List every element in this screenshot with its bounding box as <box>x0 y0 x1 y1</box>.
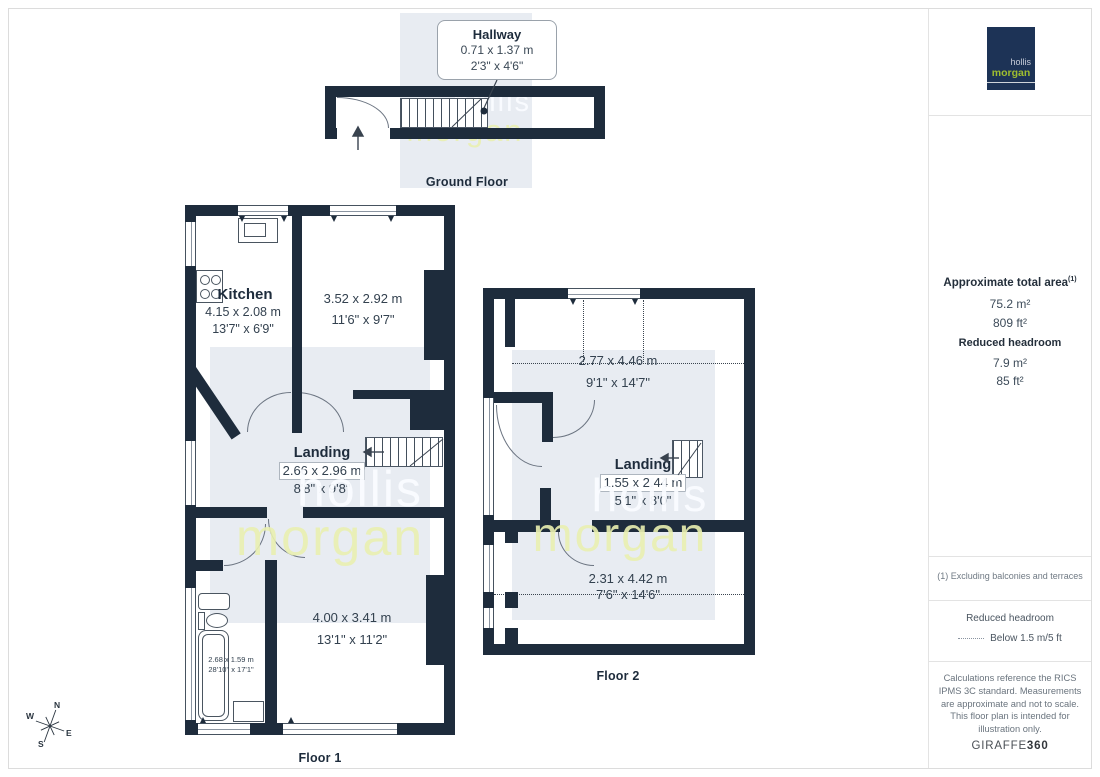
wall <box>444 205 455 735</box>
top-room-dims: 2.77 x 4.46 m 9'1" x 14'7" <box>558 350 678 394</box>
logo-morgan-text: morgan <box>987 67 1035 79</box>
bottom-room-imperial: 7'6" x 14'6" <box>568 587 688 603</box>
legend-dotted-line <box>958 638 984 639</box>
reduced-headroom-m2: 7.9 m² <box>932 356 1088 370</box>
wall <box>353 390 444 399</box>
total-area-title: Approximate total area(1) <box>932 276 1088 289</box>
hallway-callout-metric: 0.71 x 1.37 m <box>438 42 556 58</box>
hallway-callout-imperial: 2'3" x 4'6" <box>438 58 556 74</box>
bedroom-metric: 4.00 x 3.41 m <box>292 607 412 629</box>
wall <box>640 288 755 299</box>
legend-title: Reduced headroom <box>932 613 1088 624</box>
door-tick <box>388 216 394 222</box>
total-area-sup: (1) <box>1068 276 1077 283</box>
window <box>185 441 196 505</box>
wall <box>483 288 494 398</box>
wall <box>196 560 223 571</box>
landing2-dims: 1.55 x 2.44 m 5'1" x 8'0" <box>583 474 703 509</box>
wall <box>250 723 283 735</box>
toilet-tank <box>198 612 205 630</box>
hallway-callout: Hallway 0.71 x 1.37 m 2'3" x 4'6" <box>437 20 557 80</box>
landing1-metric: 2.66 x 2.96 m <box>279 462 366 480</box>
sidebar-divider <box>929 556 1091 557</box>
wall <box>288 205 330 216</box>
hollis-morgan-logo: hollis morgan <box>987 27 1035 90</box>
wall <box>325 97 336 128</box>
top-room-imperial: 9'1" x 14'7" <box>558 372 678 394</box>
ground-stairs <box>400 98 488 128</box>
kitchen-dims: 4.15 x 2.08 m 13'7" x 6'9" <box>183 304 303 338</box>
floor1-label: Floor 1 <box>260 751 380 765</box>
window <box>568 288 640 299</box>
hallway-callout-title: Hallway <box>438 27 556 42</box>
floorplan-page: hollis morgan Hallway 0.71 x 1.37 m 2'3"… <box>0 0 1100 777</box>
landing1-dims: 2.66 x 2.96 m 8'8" x 9'8" <box>252 462 392 497</box>
bathtub <box>198 630 229 721</box>
window <box>330 205 396 216</box>
window <box>185 222 196 266</box>
total-area-m2: 75.2 m² <box>932 297 1088 311</box>
logo-hollis-text: hollis <box>987 58 1035 67</box>
cabinet <box>233 701 264 722</box>
wall <box>542 392 553 442</box>
door-tick <box>281 216 287 222</box>
front-room-imperial: 11'6" x 9'7" <box>303 309 423 330</box>
sidebar-divider <box>929 661 1091 662</box>
kitchen-name: Kitchen <box>200 286 290 303</box>
window <box>483 545 494 592</box>
reduced-headroom-title: Reduced headroom <box>932 337 1088 349</box>
door-tick <box>239 216 245 222</box>
wall <box>505 592 518 608</box>
bottom-room-metric: 2.31 x 4.42 m <box>568 571 688 587</box>
landing2-imperial: 5'1" x 8'0" <box>583 492 703 509</box>
legend-row: Below 1.5 m/5 ft <box>932 633 1088 644</box>
sidebar-divider <box>929 115 1091 116</box>
footnote: (1) Excluding balconies and terraces <box>932 571 1088 581</box>
chimney-breast <box>426 575 444 665</box>
window <box>283 723 397 735</box>
wall <box>483 520 560 532</box>
toilet-bowl <box>206 613 228 628</box>
bathroom-sink <box>198 593 230 610</box>
door-tick <box>570 299 576 305</box>
bedroom-dims: 4.00 x 3.41 m 13'1" x 11'2" <box>292 607 412 651</box>
bathroom-metric: 2.68 x 1.59 m <box>200 655 262 665</box>
wall <box>592 520 755 532</box>
front-room-dims: 3.52 x 2.92 m 11'6" x 9'7" <box>303 288 423 330</box>
door-tick <box>288 717 294 723</box>
sink-basin <box>244 223 266 237</box>
wall <box>483 288 568 299</box>
legend-desc: Below 1.5 m/5 ft <box>990 633 1062 644</box>
wall <box>410 399 444 430</box>
wall <box>483 592 494 608</box>
reduced-headroom-ft2: 85 ft² <box>932 374 1088 388</box>
wall <box>505 299 515 347</box>
bathroom-dims: 2.68 x 1.59 m 28'10" x 17'1" <box>200 655 262 675</box>
window <box>198 723 250 735</box>
wall <box>265 560 277 723</box>
landing1-imperial: 8'8" x 9'8" <box>252 480 392 497</box>
wall <box>390 128 605 139</box>
wall <box>185 205 196 222</box>
landing2-metric: 1.55 x 2.44 m <box>600 474 687 492</box>
wall <box>505 628 518 645</box>
giraffe360-logo: GIRAFFE360 <box>932 740 1088 752</box>
door-tick <box>200 717 206 723</box>
wall <box>325 128 337 139</box>
wall <box>185 720 196 735</box>
wall <box>594 97 605 128</box>
bathroom-imperial: 28'10" x 17'1" <box>200 665 262 675</box>
door-tick <box>632 299 638 305</box>
window <box>238 205 288 216</box>
landing1-name: Landing <box>272 445 372 461</box>
wall <box>325 86 605 97</box>
wall <box>303 507 444 518</box>
window <box>483 608 494 628</box>
wall <box>483 628 494 655</box>
total-area-title-text: Approximate total area <box>943 277 1068 289</box>
total-area-ft2: 809 ft² <box>932 316 1088 330</box>
bathtub-inner <box>202 634 225 717</box>
wall <box>185 505 196 588</box>
giraffe-360: 360 <box>1027 740 1049 752</box>
wall <box>744 288 755 655</box>
giraffe-text: GIRAFFE <box>971 740 1026 752</box>
landing2-name: Landing <box>593 457 693 473</box>
sidebar-divider <box>928 9 929 768</box>
bottom-room-dims: 2.31 x 4.42 m 7'6" x 14'6" <box>568 571 688 603</box>
window <box>483 398 494 515</box>
disclaimer: Calculations reference the RICS IPMS 3C … <box>938 672 1082 736</box>
top-room-metric: 2.77 x 4.46 m <box>558 350 678 372</box>
wall <box>196 507 267 518</box>
logo-rule <box>987 82 1035 83</box>
bedroom-imperial: 13'1" x 11'2" <box>292 629 412 651</box>
kitchen-metric: 4.15 x 2.08 m <box>183 304 303 321</box>
floor2-label: Floor 2 <box>558 669 678 683</box>
sidebar-divider <box>929 600 1091 601</box>
door-tick <box>331 216 337 222</box>
front-room-metric: 3.52 x 2.92 m <box>303 288 423 309</box>
kitchen-imperial: 13'7" x 6'9" <box>183 321 303 338</box>
window <box>185 588 196 720</box>
wall <box>185 266 196 441</box>
wall <box>483 644 755 655</box>
ground-floor-label: Ground Floor <box>377 175 557 189</box>
chimney-breast <box>424 270 444 360</box>
wall <box>505 522 518 543</box>
wall <box>540 488 551 522</box>
